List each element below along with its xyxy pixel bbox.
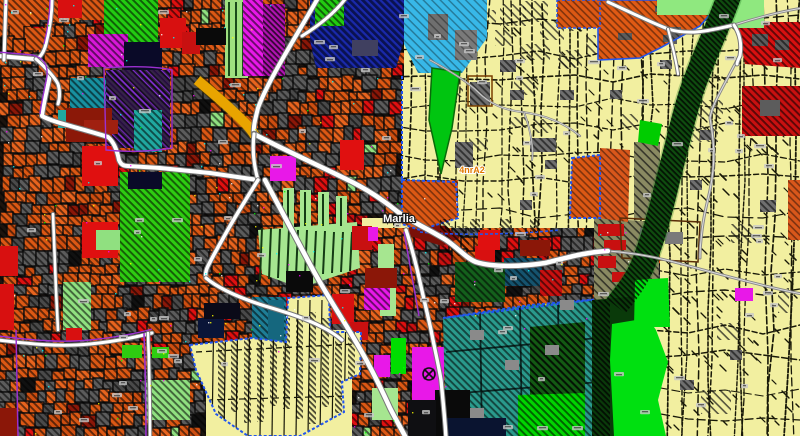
svg-text:4nrA2: 4nrA2 (459, 165, 485, 175)
svg-text:Marlia: Marlia (383, 213, 416, 225)
